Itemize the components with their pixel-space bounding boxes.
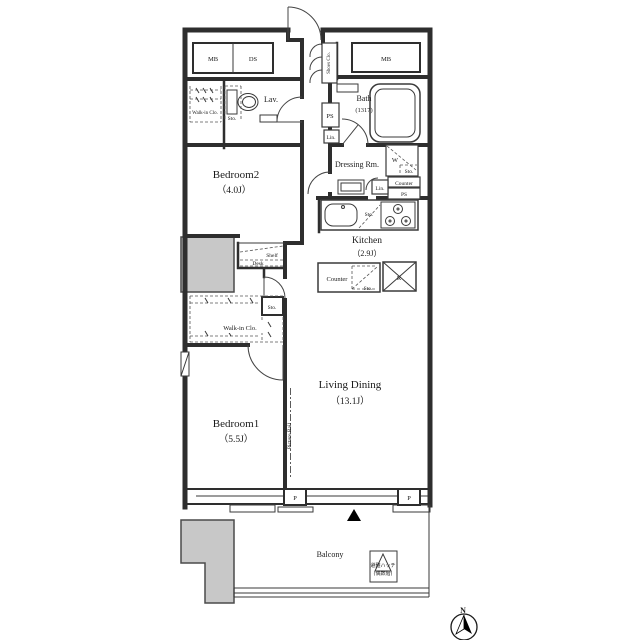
- bedroom1-size-label: （5.5J）: [219, 433, 254, 445]
- kitchen-size-label: （2.9J）: [352, 249, 381, 258]
- page-background: [0, 0, 640, 640]
- bath-label: Bath: [356, 94, 371, 103]
- bedroom1-west-window: [181, 352, 189, 376]
- kitchen-label: Kitchen: [352, 236, 382, 246]
- lin-label-2: Lin.: [375, 186, 385, 192]
- bath-size-label: (1317): [355, 107, 372, 114]
- ds-label: DS: [249, 56, 258, 63]
- hall-storage-label: Sto.: [268, 305, 277, 311]
- mb-left-label: MB: [208, 56, 219, 63]
- hatch-label-line2: (偶数階): [374, 570, 393, 577]
- living-dining-size-label: （13.1J）: [330, 395, 369, 407]
- washer-label: W: [392, 157, 399, 164]
- lav-storage-label: Sto.: [228, 116, 237, 122]
- shelf-label: Shelf: [266, 252, 278, 259]
- ps-label-2: PS: [401, 192, 407, 198]
- lin-label-1: Lin.: [326, 135, 336, 141]
- dressing-room-label: Dressing Rm.: [335, 160, 379, 169]
- pillar-label-2: P: [407, 495, 411, 502]
- floor-plan-drawing: MB DS MB Shoes Clo. Walk-in Clo. Sto. La…: [0, 0, 640, 640]
- counter-label-1: Counter: [395, 181, 413, 187]
- refrigerator-label: R: [397, 275, 402, 282]
- lav-label: Lav.: [264, 95, 278, 104]
- island-storage-label: Sto.: [364, 286, 373, 292]
- bedroom2-label: Bedroom2: [213, 169, 259, 181]
- mb-right-label: MB: [381, 56, 392, 63]
- picture-rail-label: Picture Rail: [287, 422, 293, 449]
- washer-storage-label: Sto.: [405, 169, 414, 175]
- sink-storage-label: Sto.: [365, 212, 374, 218]
- pillar-label-1: P: [293, 495, 297, 502]
- desk-label: Desk: [252, 261, 264, 267]
- bedroom1-label: Bedroom1: [213, 418, 259, 430]
- floor-plan-page: MB DS MB Shoes Clo. Walk-in Clo. Sto. La…: [0, 0, 640, 640]
- walk-in-closet-2-label: Walk-in Clo.: [223, 325, 257, 332]
- balcony-label: Balcony: [317, 550, 344, 559]
- counter-label-2: Counter: [327, 276, 349, 283]
- north-label: N: [460, 606, 466, 615]
- bedroom2-size-label: （4.0J）: [217, 184, 252, 196]
- ps-label-1: PS: [326, 113, 334, 120]
- structure-block-mid-left: [181, 237, 234, 292]
- hatch-label-line1: 避難ハッチ: [370, 562, 395, 569]
- living-dining-label: Living Dining: [319, 379, 382, 391]
- bathtub: [370, 84, 420, 142]
- walk-in-closet-1-label: Walk-in Clo.: [192, 111, 218, 116]
- shoes-closet-label: Shoes Clo.: [327, 52, 332, 74]
